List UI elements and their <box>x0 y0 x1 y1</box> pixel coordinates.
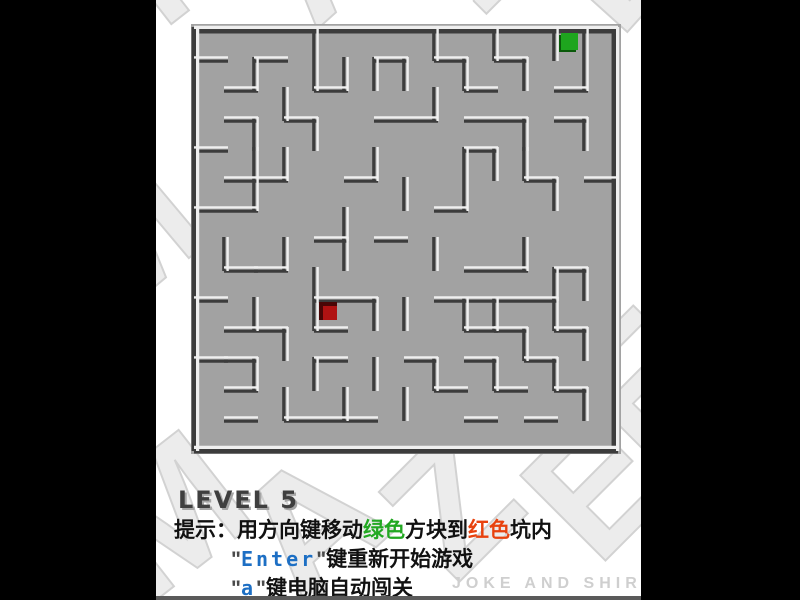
enter-instruction-text: 键重新开始游戏 <box>326 548 473 571</box>
hint-prefix: 提示：用方向键移动 <box>174 519 363 542</box>
enter-instruction: "Enter"键重新开始游戏 <box>231 543 473 573</box>
right-black-bar <box>641 0 800 600</box>
hint-red-word: 红色 <box>468 519 510 542</box>
level-label: LEVEL 5 <box>178 486 299 514</box>
close-quote: " <box>316 548 326 571</box>
hint-mid: 方块到 <box>405 519 468 542</box>
hint-green-word: 绿色 <box>363 519 405 542</box>
bottom-edge-strip <box>156 596 641 600</box>
game-window: MAZEMEMAZE LEVEL 5 提示：用方向键移动绿色方块到红色坑内 "E… <box>0 0 800 600</box>
hint-line: 提示：用方向键移动绿色方块到红色坑内 <box>174 514 552 544</box>
enter-key-label: Enter <box>241 547 316 571</box>
open-quote: " <box>231 548 241 571</box>
left-black-bar <box>0 0 156 600</box>
hint-suffix: 坑内 <box>510 519 552 542</box>
